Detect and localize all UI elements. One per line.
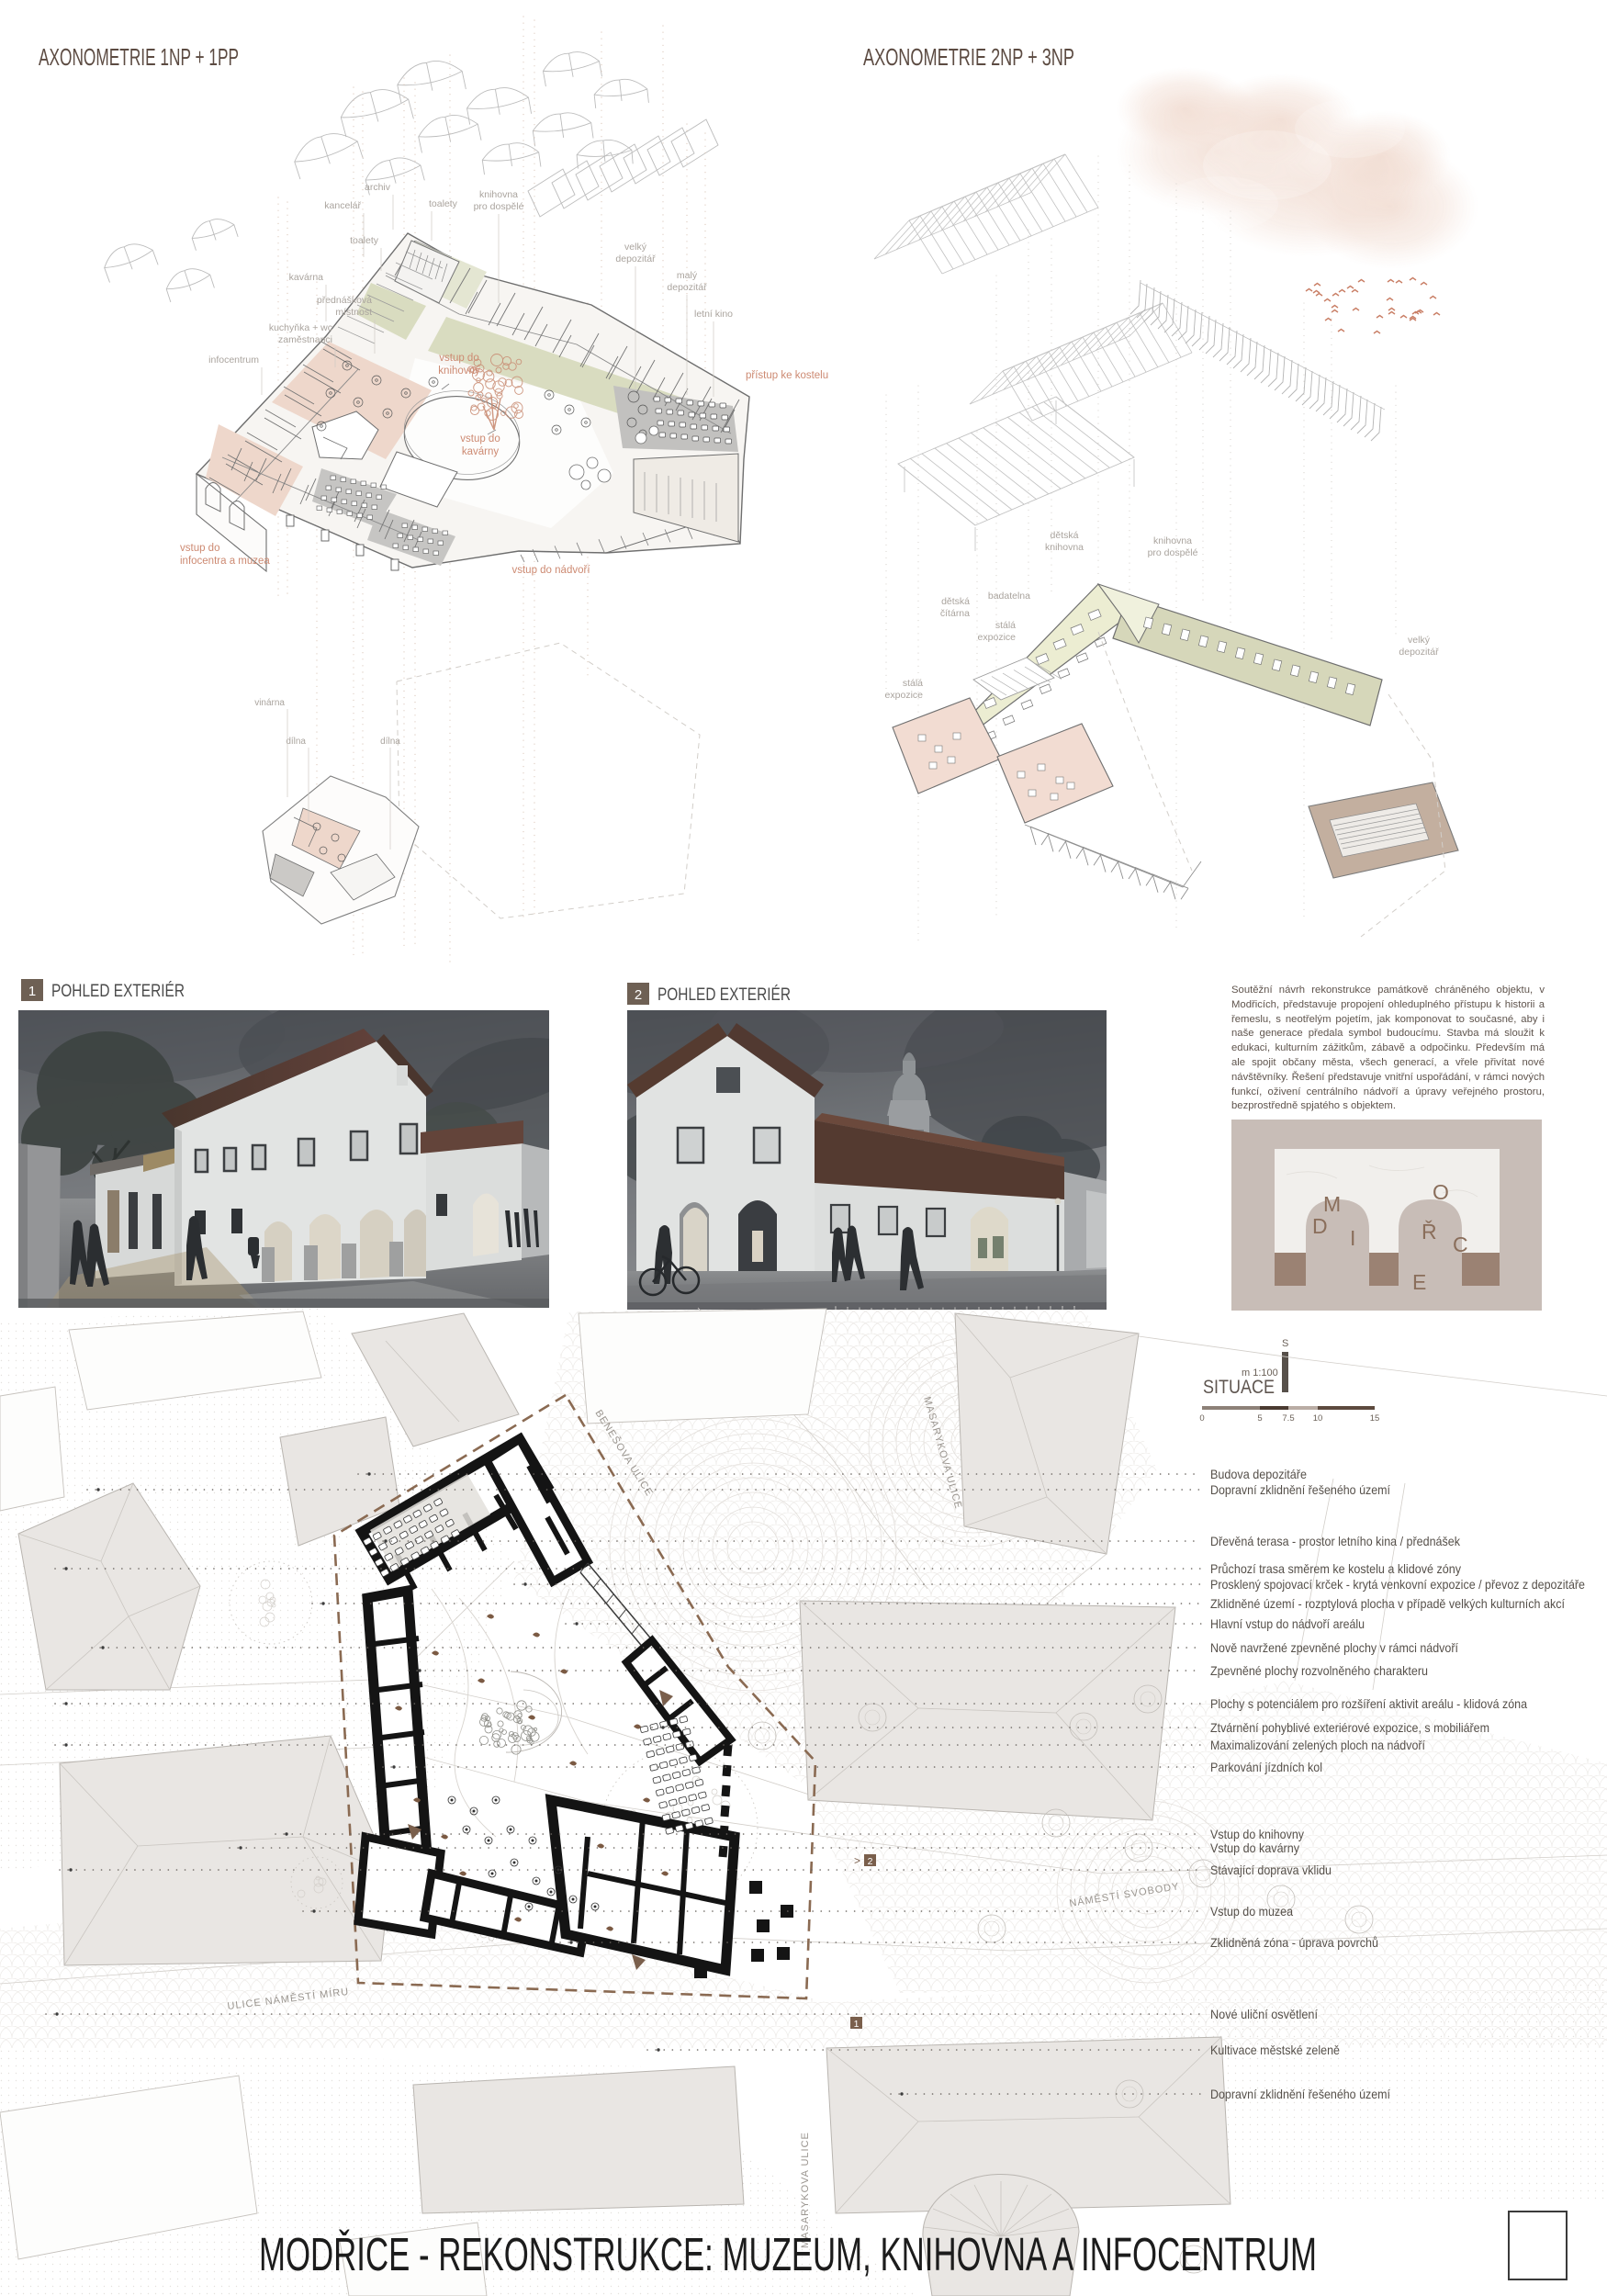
svg-text:archiv: archiv: [365, 182, 391, 193]
svg-text:kuchyňka + wc: kuchyňka + wc: [269, 322, 332, 333]
svg-text:expozice: expozice: [885, 690, 924, 701]
svg-text:O: O: [1433, 1180, 1449, 1204]
svg-text:2: 2: [868, 1856, 873, 1867]
svg-text:kavárny: kavárny: [462, 446, 500, 457]
svg-text:malý: malý: [677, 270, 698, 281]
svg-text:vstup do: vstup do: [180, 543, 219, 554]
svg-text:2: 2: [635, 987, 642, 1003]
svg-text:AXONOMETRIE 1NP + 1PP: AXONOMETRIE 1NP + 1PP: [39, 43, 239, 71]
svg-text:čítárna: čítárna: [940, 608, 970, 619]
svg-text:dílna: dílna: [286, 737, 306, 747]
svg-text:C: C: [1453, 1232, 1468, 1256]
svg-text:dílna: dílna: [380, 737, 400, 747]
svg-text:Zklidněná zóna - úprava povrch: Zklidněná zóna - úprava povrchů: [1210, 1935, 1378, 1950]
svg-text:místnost: místnost: [335, 307, 372, 318]
svg-text:Parkování jízdních kol: Parkování jízdních kol: [1210, 1760, 1322, 1774]
svg-text:depozitář: depozitář: [1399, 647, 1439, 658]
svg-text:knihovna: knihovna: [1153, 535, 1192, 546]
svg-text:MODŘICE - REKONSTRUKCE: MUZEU: MODŘICE - REKONSTRUKCE: MUZEUM, KNIHOVNA…: [259, 2228, 1317, 2280]
svg-text:knihovny: knihovny: [438, 366, 480, 377]
svg-text:Dopravní zklidnění řešeného úz: Dopravní zklidnění řešeného území: [1210, 1482, 1390, 1497]
svg-text:dětská: dětská: [1051, 530, 1079, 541]
svg-text:I: I: [1350, 1226, 1355, 1250]
svg-text:kancelář: kancelář: [324, 200, 361, 211]
svg-text:depozitář: depozitář: [615, 253, 656, 264]
svg-text:1: 1: [28, 984, 36, 999]
svg-text:letní kino: letní kino: [694, 309, 733, 320]
svg-text:velký: velký: [1408, 635, 1431, 646]
svg-text:Dopravní zklidnění řešeného úz: Dopravní zklidnění řešeného území: [1210, 2087, 1390, 2101]
svg-text:badatelna: badatelna: [988, 591, 1030, 602]
svg-text:kavárna: kavárna: [289, 272, 324, 283]
svg-text:Vstup do kavárny: Vstup do kavárny: [1210, 1840, 1299, 1855]
svg-text:infocentra a muzea: infocentra a muzea: [180, 556, 270, 567]
svg-text:Vstup do knihovny: Vstup do knihovny: [1210, 1827, 1304, 1841]
svg-text:přednášková: přednášková: [317, 295, 372, 306]
svg-text:Dřevěná terasa - prostor letní: Dřevěná terasa - prostor letního kina / …: [1210, 1534, 1461, 1548]
svg-text:Průchozí trasa směrem ke koste: Průchozí trasa směrem ke kostelu a klido…: [1210, 1561, 1461, 1576]
svg-text:Ztvárnění pohyblivé exteriérov: Ztvárnění pohyblivé exteriérové expozice…: [1210, 1720, 1489, 1735]
svg-text:Maximalizování zelených ploch: Maximalizování zelených ploch na nádvoří: [1210, 1738, 1425, 1752]
svg-text:Hlavní vstup do nádvoří areálu: Hlavní vstup do nádvoří areálu: [1210, 1616, 1365, 1631]
svg-text:Ř: Ř: [1422, 1220, 1437, 1244]
svg-text:toalety: toalety: [429, 198, 458, 209]
svg-text:velký: velký: [624, 242, 647, 253]
svg-text:M: M: [1323, 1192, 1341, 1216]
svg-text:vstup do nádvoří: vstup do nádvoří: [511, 565, 590, 576]
svg-text:POHLED EXTERIÉR: POHLED EXTERIÉR: [51, 980, 185, 1001]
svg-text:pro dospělé: pro dospělé: [1148, 547, 1198, 558]
svg-text:AXONOMETRIE 2NP + 3NP: AXONOMETRIE 2NP + 3NP: [863, 43, 1074, 71]
svg-text:vinárna: vinárna: [254, 698, 285, 708]
svg-text:Prosklený spojovací krček - kr: Prosklený spojovací krček - krytá venkov…: [1210, 1577, 1585, 1592]
svg-text:Zklidněné území - rozptylová p: Zklidněné území - rozptylová plocha v př…: [1210, 1596, 1565, 1611]
svg-text:Stávající doprava vklidu: Stávající doprava vklidu: [1210, 1863, 1332, 1877]
svg-text:expozice: expozice: [978, 632, 1017, 643]
svg-text:toalety: toalety: [350, 235, 379, 246]
svg-text:Budova depozitáře: Budova depozitáře: [1210, 1467, 1307, 1481]
svg-text:Nové uliční osvětlení: Nové uliční osvětlení: [1210, 2007, 1318, 2021]
svg-text:knihovna: knihovna: [1045, 542, 1084, 553]
svg-text:depozitář: depozitář: [667, 282, 707, 293]
svg-text:POHLED EXTERIÉR: POHLED EXTERIÉR: [657, 984, 791, 1005]
svg-text:vstup do: vstup do: [460, 433, 500, 445]
svg-text:pro dospělé: pro dospělé: [474, 201, 524, 212]
svg-text:Kultivace městské zeleně: Kultivace městské zeleně: [1210, 2043, 1340, 2057]
svg-text:dětská: dětská: [941, 596, 970, 607]
svg-text:zaměstnanci: zaměstnanci: [278, 334, 332, 345]
svg-text:>: >: [854, 1854, 860, 1867]
svg-text:stálá: stálá: [903, 678, 923, 689]
svg-text:Plochy s potenciálem pro rozší: Plochy s potenciálem pro rozšíření aktiv…: [1210, 1696, 1527, 1711]
svg-text:stálá: stálá: [995, 620, 1016, 631]
svg-text:Zpevněné plochy rozvolněného c: Zpevněné plochy rozvolněného charakteru: [1210, 1663, 1428, 1678]
svg-text:Nově navržené zpevněné plochy: Nově navržené zpevněné plochy v rámci ná…: [1210, 1640, 1458, 1655]
svg-text:knihovna: knihovna: [479, 189, 518, 200]
svg-text:vstup do: vstup do: [439, 353, 478, 364]
svg-text:přístup ke kostelu: přístup ke kostelu: [746, 370, 828, 381]
svg-text:infocentrum: infocentrum: [208, 355, 259, 366]
svg-text:1: 1: [854, 2019, 860, 2030]
svg-text:D: D: [1312, 1214, 1328, 1238]
svg-text:Vstup do muzea: Vstup do muzea: [1210, 1904, 1293, 1919]
